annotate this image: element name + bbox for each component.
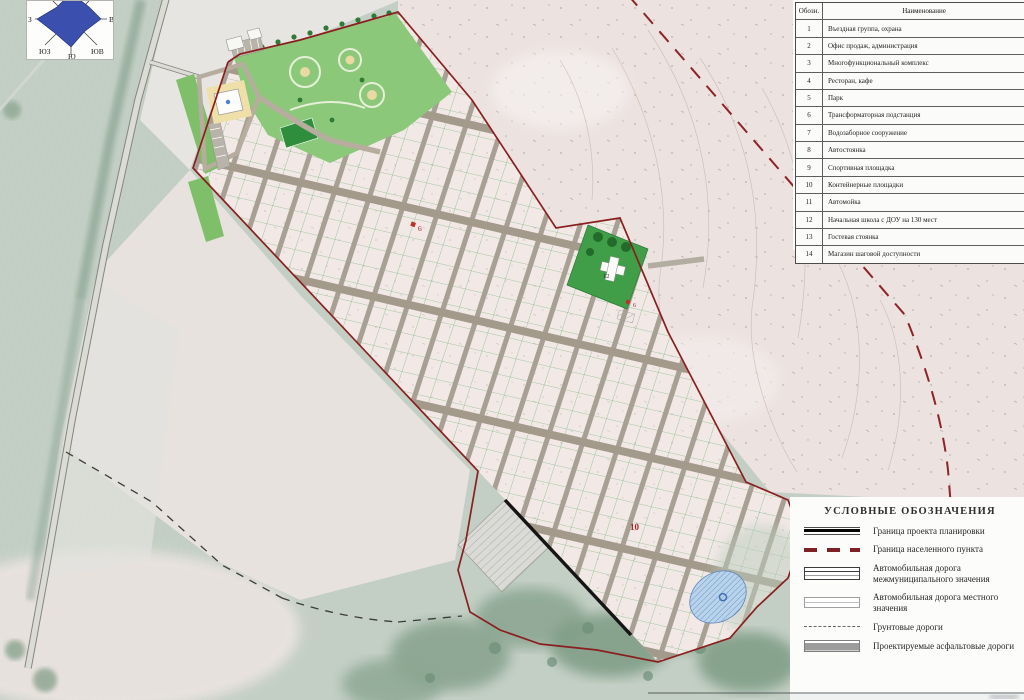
row-name: Трансформаторная подстанция [823, 107, 1024, 123]
table-row: 6 Трансформаторная подстанция [796, 106, 1024, 123]
legend-label: Грунтовые дороги [873, 622, 943, 632]
legend-item: Грунтовые дороги [804, 622, 1016, 632]
compass-label-west: З [28, 15, 32, 24]
row-number: 2 [796, 38, 823, 54]
legend-item: Граница проекта планировки [804, 526, 1016, 536]
legend-item: Автомобильная дорога межмуниципального з… [804, 563, 1016, 584]
row-number: 14 [796, 246, 823, 262]
table-row: 10 Контейнерные площадки [796, 176, 1024, 193]
row-name: Гостевая стоянка [823, 229, 1024, 245]
objects-table-panel: Обозн. Наименование 1 Въездная группа, о… [793, 0, 1024, 250]
marker-6: 6 [418, 224, 422, 233]
table-row: 4 Ресторан, кафе [796, 72, 1024, 89]
row-number: 6 [796, 107, 823, 123]
planning-map-sheet: 6 6 10 12 З В Ю ЮЗ ЮВ Обозн. Наим [0, 0, 1024, 700]
row-number: 12 [796, 212, 823, 228]
legend-item: Граница населенного пункта [804, 544, 1016, 554]
table-row: 3 Многофункциональный комплекс [796, 54, 1024, 71]
compass-rose: З В Ю ЮЗ ЮВ [26, 0, 114, 60]
row-name: Контейнерные площадки [823, 177, 1024, 193]
row-name: Автостоянка [823, 142, 1024, 158]
table-row: 1 Въездная группа, охрана [796, 19, 1024, 36]
intermunicipal-road-swatch [804, 567, 860, 580]
marker-12: 12 [603, 273, 610, 280]
legend-item: Автомобильная дорога местного значения [804, 592, 1016, 613]
settlement-boundary-swatch [804, 548, 860, 552]
row-number: 5 [796, 90, 823, 106]
compass-label-southwest: ЮЗ [39, 47, 51, 56]
legend-label: Граница проекта планировки [873, 526, 985, 536]
map-legend: УСЛОВНЫЕ ОБОЗНАЧЕНИЯ Граница проекта пла… [790, 497, 1024, 692]
row-name: Магазин шаговой доступности [823, 246, 1024, 262]
row-name: Многофункциональный комплекс [823, 55, 1024, 71]
row-number: 1 [796, 20, 823, 36]
table-row: 14 Магазин шаговой доступности [796, 245, 1024, 262]
local-road-swatch [804, 597, 860, 608]
row-number: 11 [796, 194, 823, 210]
table-header-name: Наименование [823, 3, 1024, 19]
row-number: 8 [796, 142, 823, 158]
row-name: Автомойка [823, 194, 1024, 210]
dirt-road-swatch [804, 626, 860, 627]
table-header-row: Обозн. Наименование [796, 3, 1024, 19]
row-name: Спортивная площадка [823, 159, 1024, 175]
compass-label-east: В [109, 15, 114, 24]
row-number: 7 [796, 125, 823, 141]
row-number: 4 [796, 73, 823, 89]
legend-label: Автомобильная дорога местного значения [873, 592, 1016, 613]
table-row: 5 Парк [796, 89, 1024, 106]
row-number: 10 [796, 177, 823, 193]
legend-title: УСЛОВНЫЕ ОБОЗНАЧЕНИЯ [804, 506, 1016, 517]
fountain-mark [226, 100, 230, 104]
main-building [206, 80, 252, 124]
table-row: 2 Офис продаж, администрация [796, 37, 1024, 54]
row-name: Въездная группа, охрана [823, 20, 1024, 36]
table-row: 12 Начальная школа с ДОУ на 130 мест [796, 211, 1024, 228]
row-name: Ресторан, кафе [823, 73, 1024, 89]
row-name: Парк [823, 90, 1024, 106]
legend-label: Автомобильная дорога межмуниципального з… [873, 563, 1016, 584]
compass-label-south: Ю [68, 52, 76, 60]
row-number: 13 [796, 229, 823, 245]
row-number: 9 [796, 159, 823, 175]
row-number: 3 [796, 55, 823, 71]
compass-graphic: З В Ю ЮЗ ЮВ [27, 1, 114, 60]
row-name: Водозаборное сооружение [823, 125, 1024, 141]
row-name: Начальная школа с ДОУ на 130 мест [823, 212, 1024, 228]
legend-label: Граница населенного пункта [873, 544, 983, 554]
table-row: 7 Водозаборное сооружение [796, 124, 1024, 141]
row-name: Офис продаж, администрация [823, 38, 1024, 54]
table-header-symbol: Обозн. [796, 3, 823, 19]
objects-table: Обозн. Наименование 1 Въездная группа, о… [795, 2, 1024, 264]
compass-star [37, 1, 101, 47]
project-boundary-swatch [804, 527, 860, 535]
table-row: 11 Автомойка [796, 193, 1024, 210]
table-row: 8 Автостоянка [796, 141, 1024, 158]
compass-label-southeast: ЮВ [91, 47, 104, 56]
asphalt-road-swatch [804, 640, 860, 652]
marker-10: 10 [630, 522, 640, 532]
legend-label: Проектируемые асфальтовые дороги [873, 641, 1014, 651]
legend-item: Проектируемые асфальтовые дороги [804, 640, 1016, 652]
sheet-stamp-mark [990, 695, 1018, 698]
table-row: 9 Спортивная площадка [796, 158, 1024, 175]
marker-6b: 6 [633, 303, 636, 309]
table-row: 13 Гостевая стоянка [796, 228, 1024, 245]
